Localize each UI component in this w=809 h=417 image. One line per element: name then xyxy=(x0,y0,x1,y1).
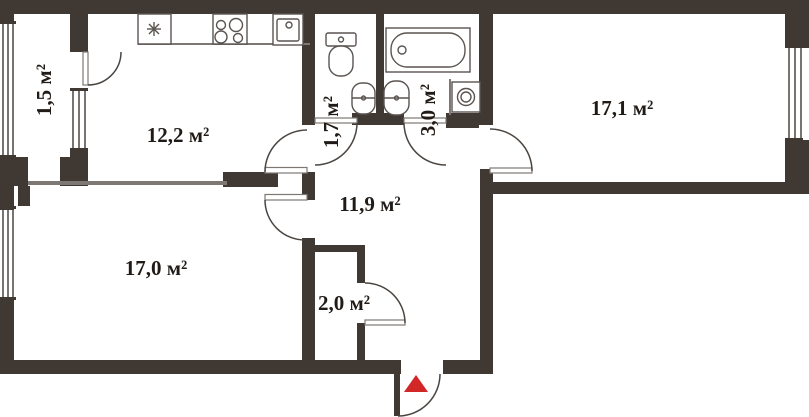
room-label-balcony: 1,5 м² xyxy=(32,64,56,116)
window-balcony-left xyxy=(0,21,16,158)
snowflake-icon xyxy=(147,22,161,36)
door-living-room xyxy=(490,129,532,173)
toilet-icon xyxy=(326,33,356,76)
washbasin-wc-icon xyxy=(352,83,375,114)
room-label-wc: 1,7 м² xyxy=(319,96,343,148)
room-label-bathroom: 3,0 м² xyxy=(416,84,440,136)
door-kitchen xyxy=(265,130,307,173)
window-bedroom xyxy=(0,206,16,300)
room-label-kitchen: 12,2 м² xyxy=(147,123,210,147)
washbasin-bath-icon xyxy=(384,81,409,115)
door-storage xyxy=(365,283,405,325)
freezer-icon xyxy=(138,14,171,44)
room-label-bedroom: 17,0 м² xyxy=(125,256,188,280)
entrance-arrow-icon xyxy=(404,375,428,392)
window-living-room xyxy=(785,45,803,141)
door-bedroom xyxy=(265,195,307,241)
door-balcony xyxy=(83,52,121,85)
floor-plan: 1,5 м² 12,2 м² 1,7 м² 3,0 м² 17,1 м² 11,… xyxy=(0,0,809,417)
room-label-hallway: 11,9 м² xyxy=(339,192,400,216)
stove-icon xyxy=(213,14,247,44)
kitchen-sink-icon xyxy=(273,14,303,45)
washing-machine-icon xyxy=(452,82,480,112)
window-balcony-right xyxy=(70,88,88,151)
room-label-storage: 2,0 м² xyxy=(318,291,370,315)
room-label-living-room: 17,1 м² xyxy=(591,96,654,120)
bathtub-icon xyxy=(386,28,470,72)
